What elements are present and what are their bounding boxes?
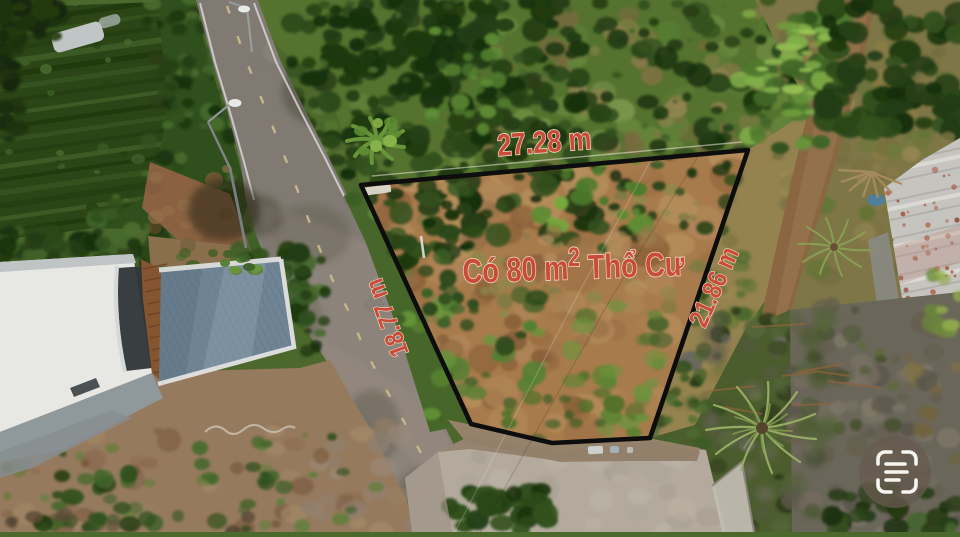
svg-text:27.28 m: 27.28 m — [496, 121, 593, 163]
